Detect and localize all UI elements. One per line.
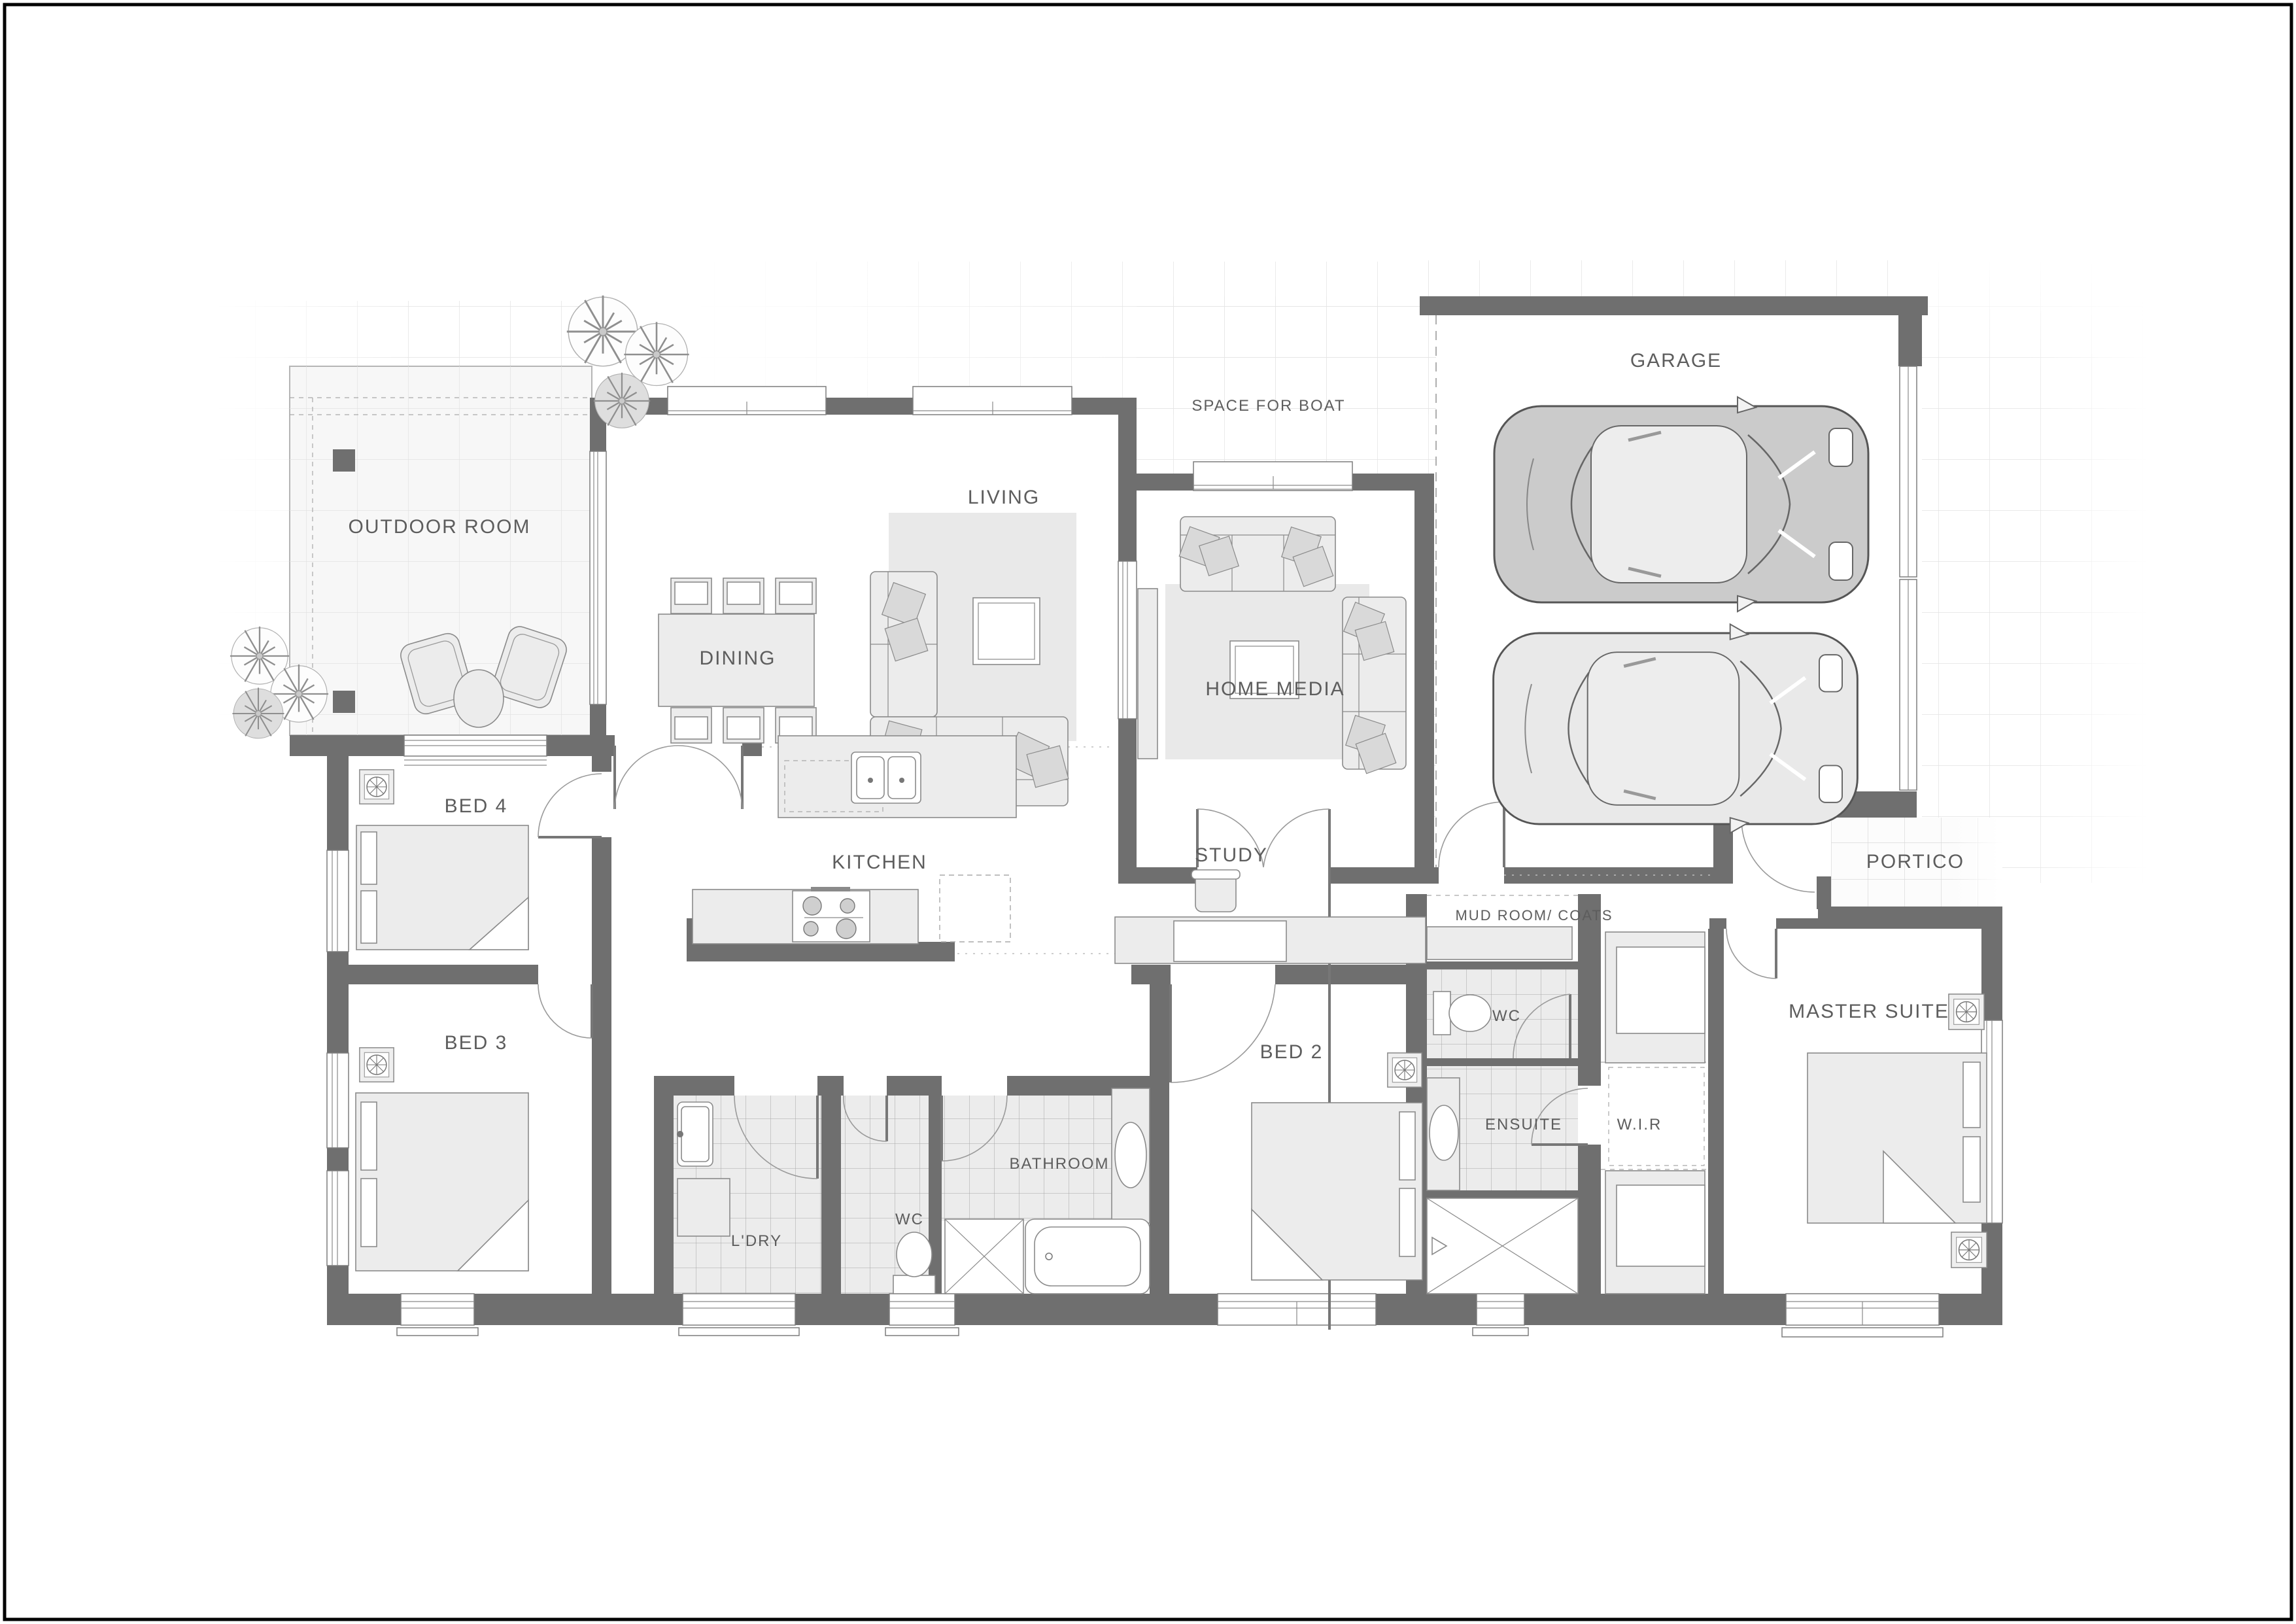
- room-label-bed-3: BED 3: [445, 1032, 508, 1054]
- island-bench-icon: [778, 736, 1016, 818]
- room-label-study: STUDY: [1195, 844, 1268, 866]
- bathtub-icon: [1025, 1219, 1150, 1294]
- ceiling-fan-icon: [360, 770, 394, 804]
- ceiling-fan-icon: [1949, 994, 1984, 1029]
- room-label-dining: DINING: [700, 648, 776, 669]
- window: [590, 451, 606, 704]
- room-label-kitchen: KITCHEN: [832, 852, 927, 873]
- room-label-wc-hall: WC: [895, 1211, 924, 1228]
- basin-icon: [1115, 1122, 1146, 1188]
- window: [1118, 561, 1137, 719]
- window: [679, 1294, 799, 1336]
- room-label-mud-room: MUD ROOM/ COATS: [1455, 907, 1613, 924]
- room-label-outdoor-room: OUTDOOR ROOM: [349, 516, 531, 538]
- window: [1218, 1294, 1376, 1325]
- car-icon: [1494, 624, 1858, 833]
- window: [1473, 1294, 1528, 1336]
- room-label-portico: PORTICO: [1866, 851, 1964, 872]
- master-bed-icon: [1808, 1053, 1987, 1223]
- desk-chair-icon: [1191, 870, 1240, 912]
- window: [885, 1294, 959, 1336]
- mudroom-bench-icon: [1427, 927, 1572, 959]
- window: [327, 850, 349, 952]
- ceiling-fan-icon: [1951, 1232, 1987, 1268]
- shower-icon: [1427, 1198, 1578, 1294]
- ceiling-fan-icon: [360, 1048, 394, 1082]
- room-label-wir: W.I.R: [1617, 1116, 1662, 1133]
- window: [397, 1294, 478, 1336]
- room-label-master-suite: MASTER SUITE: [1789, 1001, 1949, 1022]
- ceiling-fan-icon: [1388, 1053, 1422, 1087]
- room-label-garage: GARAGE: [1630, 350, 1722, 371]
- coffee-table-icon: [973, 598, 1040, 665]
- room-label-bed-4: BED 4: [445, 795, 508, 817]
- shower-icon: [945, 1219, 1023, 1294]
- window: [668, 387, 826, 415]
- window: [913, 387, 1072, 415]
- garage-door: [1900, 366, 1917, 790]
- room-label-bathroom: BATHROOM: [1010, 1155, 1110, 1173]
- room-label-living: LIVING: [968, 487, 1040, 508]
- basin-icon: [1430, 1105, 1458, 1160]
- window: [327, 1171, 349, 1266]
- washer-icon: [677, 1179, 730, 1236]
- window: [1193, 462, 1352, 491]
- car-icon: [1494, 397, 1868, 612]
- floor-plan-drawing: OUTDOOR ROOM DINING LIVING HOME MEDIA SP…: [0, 0, 2296, 1624]
- bed4-icon: [356, 825, 528, 950]
- window: [327, 1053, 349, 1148]
- stove-icon: [793, 887, 870, 942]
- room-label-ensuite: ENSUITE: [1485, 1116, 1562, 1133]
- bed3-icon: [356, 1093, 528, 1271]
- sofa-icon: [1343, 597, 1406, 774]
- floor-plan-page: OUTDOOR ROOM DINING LIVING HOME MEDIA SP…: [0, 0, 2296, 1624]
- double-sink-icon: [851, 752, 921, 803]
- tv-unit-icon: [1138, 589, 1157, 759]
- room-label-home-media: HOME MEDIA: [1205, 678, 1345, 700]
- room-label-bed-2: BED 2: [1260, 1041, 1324, 1063]
- laundry-sink-icon: [677, 1102, 713, 1166]
- toilet-icon: [893, 1232, 935, 1294]
- kitchen-counter: [693, 887, 918, 944]
- outdoor-table-icon: [454, 670, 504, 727]
- sofa-icon: [1179, 517, 1335, 591]
- bed2-icon: [1252, 1103, 1422, 1280]
- room-label-laundry: L'DRY: [731, 1232, 782, 1250]
- window: [1782, 1294, 1943, 1337]
- room-label-space-for-boat: SPACE FOR BOAT: [1191, 397, 1345, 415]
- toilet-icon: [1433, 992, 1491, 1035]
- room-label-wc-master: WC: [1492, 1007, 1521, 1025]
